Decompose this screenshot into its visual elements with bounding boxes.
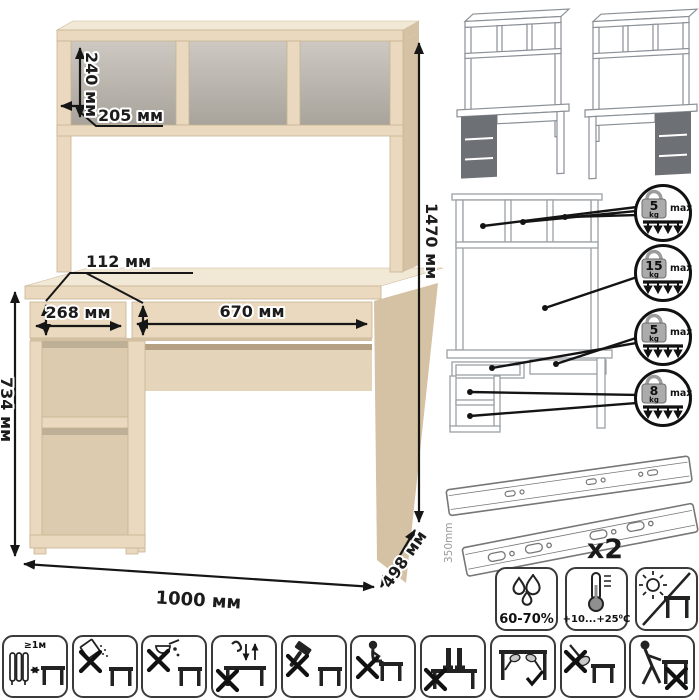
load-max-label: max: [670, 388, 692, 399]
pedestal-shadow-top: [42, 341, 128, 348]
tile-temperature: +10...+25⁰C: [563, 568, 631, 630]
load-desk-outline: [447, 194, 612, 432]
pedestal-shadow-mid: [42, 428, 128, 435]
pedestal-shelf: [42, 417, 128, 428]
variant-pedestal-left: [457, 9, 569, 179]
load-badge-drawers: 5 kg max: [636, 310, 693, 365]
slide-quantity-label: x2: [587, 534, 623, 565]
pedestal-interiors: [42, 341, 128, 535]
humidity-label: 60-70%: [499, 612, 554, 627]
load-unit: kg: [649, 396, 659, 404]
label-total-width: 1000 мм: [155, 587, 242, 613]
pedestal-foot-left: [34, 548, 46, 554]
load-limits-section: 5 kg max 15 kg max: [447, 186, 692, 433]
label-desk-height: 734 мм: [0, 377, 16, 442]
slide-length-label: 350mm: [443, 523, 455, 564]
pedestal-foot-right: [126, 548, 138, 554]
main-desk-diagram: 240 мм 205 мм 1470 мм 112 мм 268 мм 670 …: [0, 21, 443, 614]
label-right-drawer-width: 670 мм: [219, 302, 284, 321]
load-max-label: max: [670, 203, 692, 214]
label-shelf-depth: 205 мм: [98, 106, 163, 125]
variant-pedestal-right: [585, 9, 697, 179]
pictogram-frames: [3, 636, 694, 697]
drawer-slide-1: [446, 456, 692, 516]
tile-humidity: 60-70%: [496, 568, 557, 630]
load-limit-badges: 5 kg max 15 kg max: [636, 186, 693, 426]
hutch-divider-2: [287, 41, 300, 125]
variant-a-pedestal: [461, 115, 497, 179]
drawer-bottom-shadow: [30, 338, 372, 341]
tile-no-direct-sunlight: [636, 568, 697, 630]
load-unit: kg: [649, 271, 659, 279]
load-badge-desktop: 15 kg max: [636, 246, 693, 301]
product-sheet-canvas: 240 мм 205 мм 1470 мм 112 мм 268 мм 670 …: [0, 0, 699, 700]
hutch-top-board: [57, 30, 403, 41]
distance-label: ≥1м: [24, 640, 46, 651]
environment-tiles: 60-70% +10...+25⁰C: [496, 568, 697, 630]
assembly-variants: [457, 9, 697, 179]
hutch-divider-1: [176, 41, 189, 125]
care-pictograms-row: ≥1м: [3, 636, 694, 697]
temperature-label: +10...+25⁰C: [563, 614, 631, 625]
load-unit: kg: [649, 335, 659, 343]
dim-arrow-1000: [24, 564, 374, 587]
load-badge-hutch-shelves: 5 kg max: [636, 186, 693, 241]
label-left-drawer-width: 268 мм: [45, 303, 110, 322]
load-badge-pedestal-shelves: 8 kg max: [636, 371, 693, 426]
load-max-label: max: [670, 327, 692, 338]
load-max-label: max: [670, 263, 692, 274]
hutch-right-column: [390, 41, 403, 272]
pedestal-right-wall: [128, 341, 145, 552]
desktop-front-edge: [25, 286, 381, 299]
product-sheet: 240 мм 205 мм 1470 мм 112 мм 268 мм 670 …: [0, 0, 699, 700]
label-total-height: 1470 мм: [422, 203, 441, 279]
label-drawer-front-height: 112 мм: [86, 252, 151, 271]
pedestal-bottom-board: [30, 535, 145, 548]
pedestal-left-wall: [30, 341, 42, 547]
load-unit: kg: [649, 211, 659, 219]
drawer-slide-2: [462, 503, 698, 576]
desk-back-support: [145, 344, 372, 391]
drawer-slides-section: 350mm x2: [443, 456, 698, 577]
hutch-left-column: [57, 41, 71, 272]
variant-b-pedestal: [655, 111, 691, 175]
